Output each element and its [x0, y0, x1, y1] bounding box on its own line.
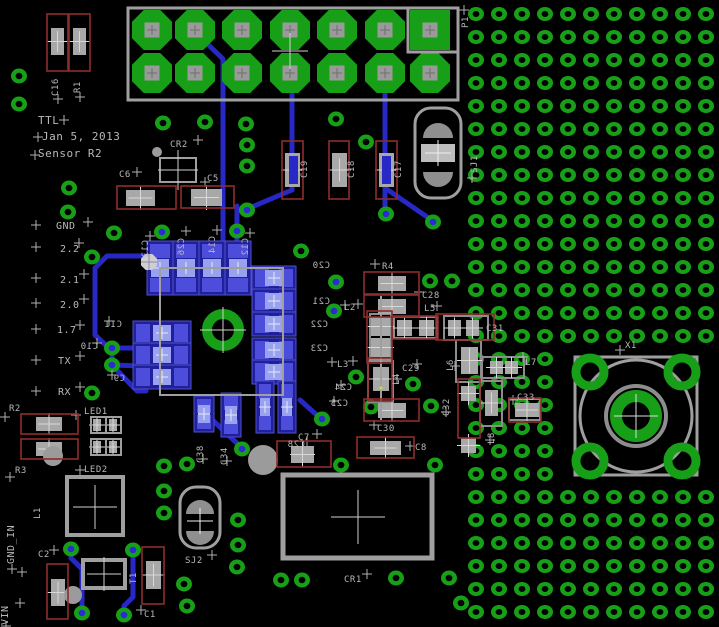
smd-chip[interactable] — [194, 396, 214, 432]
via[interactable] — [675, 237, 691, 251]
through-hole-pad[interactable] — [410, 53, 450, 93]
via[interactable] — [698, 260, 714, 274]
via[interactable] — [514, 536, 530, 550]
via[interactable] — [698, 582, 714, 596]
via[interactable] — [514, 76, 530, 90]
via[interactable] — [606, 168, 622, 182]
via[interactable] — [698, 283, 714, 297]
via[interactable] — [560, 237, 576, 251]
label-C38[interactable]: C38 — [196, 445, 206, 463]
via[interactable] — [514, 30, 530, 44]
label-C5[interactable]: C5 — [207, 174, 219, 184]
label-C29[interactable]: C29 — [402, 364, 420, 374]
via[interactable] — [675, 53, 691, 67]
via[interactable] — [698, 490, 714, 504]
label-L3[interactable]: L3 — [337, 360, 349, 370]
via[interactable] — [606, 30, 622, 44]
label-C30[interactable]: C30 — [377, 424, 395, 434]
via[interactable] — [491, 122, 507, 136]
via[interactable] — [675, 513, 691, 527]
via[interactable] — [176, 577, 192, 592]
smd-pad[interactable] — [415, 317, 438, 340]
label-C12[interactable]: C12 — [241, 238, 251, 256]
via[interactable] — [698, 53, 714, 67]
via[interactable] — [560, 260, 576, 274]
via[interactable] — [537, 122, 553, 136]
via[interactable] — [698, 99, 714, 113]
via[interactable] — [698, 329, 714, 343]
via[interactable] — [491, 76, 507, 90]
label-C18[interactable]: C18 — [347, 160, 357, 178]
label-L7[interactable]: L7 — [525, 358, 537, 368]
via[interactable] — [358, 135, 374, 150]
via[interactable] — [514, 582, 530, 596]
label-C24[interactable]: C24 — [334, 383, 352, 393]
via[interactable] — [560, 53, 576, 67]
via[interactable] — [629, 145, 645, 159]
label-C10[interactable]: C10 — [80, 342, 98, 352]
via[interactable] — [441, 571, 457, 586]
label-Jan_5__2013[interactable]: Jan 5, 2013 — [42, 130, 120, 143]
via[interactable] — [560, 306, 576, 320]
via[interactable] — [560, 76, 576, 90]
via[interactable] — [560, 513, 576, 527]
via[interactable] — [537, 467, 553, 481]
via[interactable] — [606, 559, 622, 573]
label-CR1[interactable]: CR1 — [344, 575, 362, 585]
label-2.0[interactable]: 2.0 — [60, 300, 80, 311]
via[interactable] — [583, 7, 599, 21]
via[interactable] — [491, 444, 507, 458]
smd-pad[interactable] — [481, 390, 502, 416]
via[interactable] — [491, 30, 507, 44]
via[interactable] — [606, 214, 622, 228]
via[interactable] — [197, 115, 213, 130]
label-SJ1[interactable]: SJ1 — [470, 155, 480, 173]
via[interactable] — [468, 490, 484, 504]
label-GND_IN[interactable]: GND_IN — [6, 525, 17, 564]
label-P1[interactable]: P1 — [461, 16, 471, 28]
via[interactable] — [583, 490, 599, 504]
via[interactable] — [629, 122, 645, 136]
via[interactable] — [652, 168, 668, 182]
via[interactable] — [179, 599, 195, 614]
via[interactable] — [583, 559, 599, 573]
via[interactable] — [652, 513, 668, 527]
via[interactable] — [560, 145, 576, 159]
via[interactable] — [514, 53, 530, 67]
label-C23[interactable]: C23 — [310, 344, 328, 354]
via[interactable] — [328, 112, 344, 127]
via[interactable] — [652, 122, 668, 136]
via[interactable] — [333, 458, 349, 473]
via[interactable] — [629, 283, 645, 297]
label-R2[interactable]: R2 — [9, 404, 21, 414]
label-TTL[interactable]: TTL — [38, 114, 59, 127]
label-2.1[interactable]: 2.1 — [60, 275, 80, 286]
via[interactable] — [652, 559, 668, 573]
via[interactable] — [514, 467, 530, 481]
via[interactable] — [698, 513, 714, 527]
smd-chip[interactable] — [252, 360, 296, 384]
via[interactable] — [606, 7, 622, 21]
via[interactable] — [583, 329, 599, 343]
smd-pad[interactable] — [370, 437, 401, 459]
via[interactable] — [514, 513, 530, 527]
via[interactable] — [698, 145, 714, 159]
via[interactable] — [675, 490, 691, 504]
via[interactable] — [491, 7, 507, 21]
via[interactable] — [583, 237, 599, 251]
through-hole-pad[interactable] — [365, 10, 405, 50]
label-C21[interactable]: C21 — [312, 297, 330, 307]
via[interactable] — [537, 260, 553, 274]
label-C33[interactable]: C33 — [517, 393, 535, 403]
via[interactable] — [652, 7, 668, 21]
via[interactable] — [583, 145, 599, 159]
via[interactable] — [491, 99, 507, 113]
label-L1[interactable]: L1 — [33, 507, 43, 519]
via[interactable] — [273, 573, 289, 588]
via[interactable] — [11, 97, 27, 112]
via[interactable] — [560, 582, 576, 596]
via[interactable] — [629, 306, 645, 320]
via[interactable] — [537, 99, 553, 113]
via[interactable] — [583, 513, 599, 527]
via[interactable] — [698, 76, 714, 90]
label-LED2[interactable]: LED2 — [84, 465, 108, 475]
via[interactable] — [675, 306, 691, 320]
via[interactable] — [606, 283, 622, 297]
jumper-pad[interactable] — [423, 123, 453, 138]
via[interactable] — [239, 203, 255, 218]
via[interactable] — [491, 283, 507, 297]
label-L5[interactable]: L5 — [424, 304, 436, 314]
via[interactable] — [537, 490, 553, 504]
via[interactable] — [583, 122, 599, 136]
via[interactable] — [606, 306, 622, 320]
via[interactable] — [468, 237, 484, 251]
via[interactable] — [675, 168, 691, 182]
label-RX[interactable]: RX — [58, 387, 71, 398]
pcb-canvas[interactable]: TTLJan 5, 2013Sensor R2GND2.22.12.01.7TX… — [0, 0, 719, 627]
via[interactable] — [583, 53, 599, 67]
smd-pad[interactable] — [378, 272, 406, 295]
via[interactable] — [514, 260, 530, 274]
via[interactable] — [84, 250, 100, 265]
via[interactable] — [514, 559, 530, 573]
via[interactable] — [537, 375, 553, 389]
jumper-SJ2[interactable] — [180, 487, 220, 548]
via[interactable] — [537, 237, 553, 251]
via[interactable] — [230, 513, 246, 528]
via[interactable] — [583, 99, 599, 113]
smd-pad[interactable] — [69, 28, 90, 55]
via[interactable] — [468, 191, 484, 205]
via[interactable] — [675, 605, 691, 619]
smd-chip[interactable] — [221, 393, 241, 437]
smd-chip[interactable] — [252, 312, 296, 336]
via[interactable] — [652, 306, 668, 320]
via[interactable] — [675, 214, 691, 228]
label-L2[interactable]: L2 — [344, 303, 356, 313]
via[interactable] — [537, 30, 553, 44]
through-hole-pad[interactable] — [317, 10, 357, 50]
pcb-board-drawing[interactable]: TTLJan 5, 2013Sensor R2GND2.22.12.01.7TX… — [0, 0, 719, 627]
via[interactable] — [423, 399, 439, 414]
via[interactable] — [230, 538, 246, 553]
via[interactable] — [514, 306, 530, 320]
label-C20[interactable]: C20 — [312, 261, 330, 271]
via[interactable] — [468, 260, 484, 274]
via[interactable] — [675, 122, 691, 136]
via[interactable] — [652, 53, 668, 67]
via[interactable] — [652, 329, 668, 343]
via[interactable] — [583, 191, 599, 205]
label-C13[interactable]: C13 — [141, 240, 151, 258]
via[interactable] — [514, 421, 530, 435]
via[interactable] — [514, 191, 530, 205]
via[interactable] — [491, 260, 507, 274]
via[interactable] — [583, 605, 599, 619]
via[interactable] — [629, 99, 645, 113]
via[interactable] — [698, 30, 714, 44]
through-hole-pad[interactable] — [175, 10, 215, 50]
via[interactable] — [234, 442, 250, 457]
via[interactable] — [560, 283, 576, 297]
via[interactable] — [652, 214, 668, 228]
via[interactable] — [629, 76, 645, 90]
via[interactable] — [104, 341, 120, 356]
via[interactable] — [560, 99, 576, 113]
via[interactable] — [675, 536, 691, 550]
label-LED1[interactable]: LED1 — [84, 407, 108, 417]
via[interactable] — [537, 421, 553, 435]
via[interactable] — [60, 205, 76, 220]
via[interactable] — [583, 30, 599, 44]
via[interactable] — [560, 30, 576, 44]
via[interactable] — [606, 122, 622, 136]
smd-chip[interactable] — [133, 321, 191, 345]
via[interactable] — [675, 329, 691, 343]
via[interactable] — [675, 283, 691, 297]
via[interactable] — [155, 116, 171, 131]
via[interactable] — [444, 274, 460, 289]
x1-corner-pad[interactable] — [576, 358, 604, 386]
label-C9[interactable]: C9 — [113, 374, 125, 384]
via[interactable] — [606, 99, 622, 113]
through-hole-pad[interactable] — [132, 10, 172, 50]
via[interactable] — [698, 7, 714, 21]
label-C22[interactable]: C22 — [310, 320, 328, 330]
via[interactable] — [583, 260, 599, 274]
via[interactable] — [606, 605, 622, 619]
x1-corner-pad[interactable] — [668, 358, 696, 386]
via[interactable] — [560, 329, 576, 343]
via[interactable] — [154, 225, 170, 240]
via[interactable] — [468, 53, 484, 67]
label-C31[interactable]: C31 — [486, 324, 504, 334]
via[interactable] — [652, 260, 668, 274]
via[interactable] — [698, 605, 714, 619]
via[interactable] — [156, 506, 172, 521]
via[interactable] — [537, 76, 553, 90]
smd-pad[interactable] — [142, 561, 165, 589]
via[interactable] — [514, 99, 530, 113]
via[interactable] — [537, 605, 553, 619]
label-C14[interactable]: C14 — [208, 236, 218, 254]
via[interactable] — [560, 122, 576, 136]
via[interactable] — [491, 490, 507, 504]
via[interactable] — [491, 145, 507, 159]
jumper-pad[interactable] — [423, 172, 453, 187]
via[interactable] — [675, 260, 691, 274]
via[interactable] — [468, 122, 484, 136]
via[interactable] — [652, 30, 668, 44]
via[interactable] — [293, 244, 309, 259]
via[interactable] — [491, 237, 507, 251]
via[interactable] — [537, 214, 553, 228]
smd-pad[interactable] — [191, 185, 222, 210]
via[interactable] — [239, 138, 255, 153]
via[interactable] — [491, 513, 507, 527]
via[interactable] — [675, 582, 691, 596]
via[interactable] — [606, 191, 622, 205]
via[interactable] — [11, 69, 27, 84]
via[interactable] — [583, 536, 599, 550]
label-L6[interactable]: L6 — [446, 359, 456, 371]
via[interactable] — [468, 559, 484, 573]
via[interactable] — [537, 145, 553, 159]
through-hole-pad[interactable] — [410, 10, 450, 50]
through-hole-pad[interactable] — [365, 53, 405, 93]
via[interactable] — [629, 191, 645, 205]
via[interactable] — [537, 513, 553, 527]
via[interactable] — [156, 459, 172, 474]
via[interactable] — [468, 283, 484, 297]
smd-chip[interactable] — [252, 266, 296, 290]
via[interactable] — [675, 30, 691, 44]
via[interactable] — [560, 490, 576, 504]
via[interactable] — [629, 490, 645, 504]
via[interactable] — [116, 608, 132, 623]
via[interactable] — [468, 513, 484, 527]
label-C2[interactable]: C2 — [38, 550, 50, 560]
via[interactable] — [675, 191, 691, 205]
smd-pad[interactable] — [457, 347, 482, 374]
label-Sensor_R2[interactable]: Sensor R2 — [38, 147, 102, 160]
via[interactable] — [606, 76, 622, 90]
jumper-SJ1[interactable] — [415, 108, 461, 198]
via[interactable] — [537, 53, 553, 67]
via[interactable] — [675, 559, 691, 573]
via[interactable] — [491, 467, 507, 481]
smd-pad[interactable] — [105, 417, 121, 433]
via[interactable] — [652, 191, 668, 205]
via[interactable] — [675, 7, 691, 21]
via[interactable] — [537, 352, 553, 366]
via[interactable] — [537, 582, 553, 596]
via[interactable] — [491, 214, 507, 228]
label-C16[interactable]: C16 — [51, 78, 61, 96]
via[interactable] — [606, 145, 622, 159]
via[interactable] — [425, 215, 441, 230]
via[interactable] — [63, 542, 79, 557]
label-2.2[interactable]: 2.2 — [60, 244, 80, 255]
via[interactable] — [560, 536, 576, 550]
via[interactable] — [606, 536, 622, 550]
label-L8[interactable]: L8 — [487, 432, 497, 444]
via[interactable] — [583, 306, 599, 320]
via[interactable] — [560, 559, 576, 573]
via[interactable] — [239, 159, 255, 174]
smd-pad[interactable] — [444, 318, 465, 339]
via[interactable] — [606, 53, 622, 67]
via[interactable] — [583, 76, 599, 90]
via[interactable] — [629, 168, 645, 182]
via[interactable] — [514, 214, 530, 228]
label-C1[interactable]: C1 — [144, 610, 156, 620]
via[interactable] — [514, 329, 530, 343]
via[interactable] — [652, 536, 668, 550]
label-L4[interactable]: L4 — [392, 373, 402, 385]
label-SJ2[interactable]: SJ2 — [185, 556, 203, 566]
via[interactable] — [560, 7, 576, 21]
x1-corner-pad[interactable] — [576, 447, 604, 475]
via[interactable] — [629, 7, 645, 21]
via[interactable] — [652, 605, 668, 619]
via[interactable] — [468, 467, 484, 481]
label-VIN[interactable]: VIN — [0, 605, 11, 625]
via[interactable] — [106, 226, 122, 241]
smd-chip[interactable] — [252, 289, 296, 313]
via[interactable] — [84, 386, 100, 401]
label-C25[interactable]: C25 — [330, 399, 348, 409]
via[interactable] — [422, 274, 438, 289]
label-TX[interactable]: TX — [58, 356, 71, 367]
via[interactable] — [314, 412, 330, 427]
via[interactable] — [698, 237, 714, 251]
via[interactable] — [698, 559, 714, 573]
via[interactable] — [560, 605, 576, 619]
via[interactable] — [514, 237, 530, 251]
via[interactable] — [583, 214, 599, 228]
via[interactable] — [652, 490, 668, 504]
via[interactable] — [629, 214, 645, 228]
via[interactable] — [491, 168, 507, 182]
via[interactable] — [629, 513, 645, 527]
via[interactable] — [537, 7, 553, 21]
label-R3[interactable]: R3 — [15, 466, 27, 476]
via[interactable] — [675, 99, 691, 113]
via[interactable] — [491, 536, 507, 550]
via[interactable] — [514, 7, 530, 21]
via[interactable] — [514, 444, 530, 458]
label-C28[interactable]: C28 — [422, 291, 440, 301]
smd-pad[interactable] — [47, 28, 68, 55]
via[interactable] — [537, 559, 553, 573]
via[interactable] — [179, 457, 195, 472]
through-hole-pad[interactable] — [222, 53, 262, 93]
via[interactable] — [514, 605, 530, 619]
label-C17[interactable]: C17 — [394, 160, 404, 178]
smd-chip[interactable] — [256, 381, 274, 433]
via[interactable] — [629, 605, 645, 619]
via[interactable] — [652, 99, 668, 113]
label-C26[interactable]: C26 — [177, 238, 187, 256]
via[interactable] — [405, 377, 421, 392]
label-GND[interactable]: GND — [56, 221, 76, 232]
